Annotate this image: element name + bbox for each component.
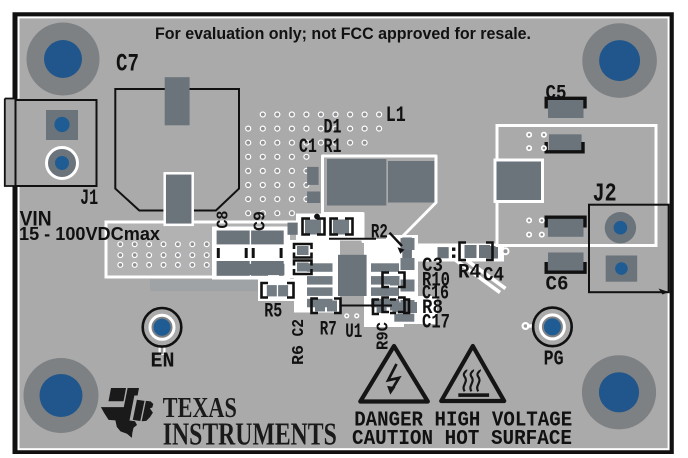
- svg-text:R2: R2: [371, 222, 388, 245]
- svg-text:R7: R7: [320, 318, 337, 341]
- svg-text:C4: C4: [483, 265, 504, 288]
- svg-text:J1: J1: [80, 186, 98, 211]
- svg-text:C9: C9: [251, 211, 270, 231]
- svg-text:C5: C5: [546, 82, 567, 105]
- svg-text:J2: J2: [593, 179, 617, 209]
- svg-text:INSTRUMENTS: INSTRUMENTS: [163, 416, 337, 452]
- svg-text:R9C: R9C: [373, 322, 392, 350]
- svg-text:C17: C17: [422, 311, 450, 334]
- svg-text:C8: C8: [214, 211, 233, 229]
- svg-text:R5: R5: [264, 300, 282, 323]
- svg-text:C6: C6: [546, 274, 569, 297]
- svg-text:EN: EN: [151, 351, 175, 374]
- svg-text:U1: U1: [345, 321, 362, 344]
- svg-text:PG: PG: [544, 349, 564, 372]
- svg-text:C7: C7: [116, 50, 139, 79]
- svg-text:CAUTION HOT SURFACE: CAUTION HOT SURFACE: [352, 427, 572, 451]
- svg-text:C2: C2: [289, 319, 308, 337]
- svg-text:15 - 100VDCmax: 15 - 100VDCmax: [19, 224, 160, 244]
- svg-text:For evaluation only; not FCC a: For evaluation only; not FCC approved fo…: [155, 24, 531, 43]
- svg-text:R4: R4: [458, 262, 481, 285]
- svg-text:R6: R6: [289, 345, 308, 365]
- svg-text:R1: R1: [324, 136, 342, 159]
- svg-text:L1: L1: [386, 103, 406, 128]
- svg-text:C1: C1: [299, 136, 317, 159]
